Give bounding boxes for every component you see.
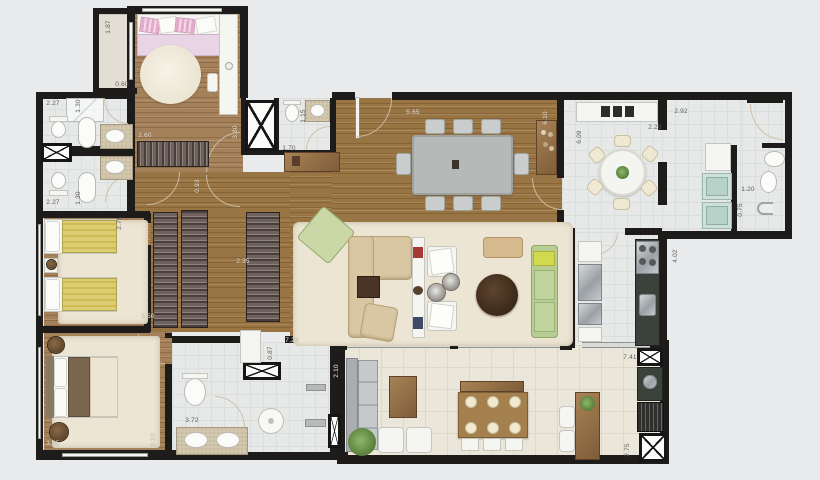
dimension-label: 2.92 [674, 109, 687, 116]
dimension-label: 3.50 [141, 314, 154, 321]
dimension-label: 7.26 [285, 338, 298, 345]
dimension-label: 6.10 [543, 111, 550, 124]
dimension-label: 2.75 [625, 443, 632, 456]
dimension-label: 2.27 [46, 101, 59, 108]
dimension-label: 1.70 [282, 146, 295, 153]
dimension-label: 4.02 [673, 249, 680, 262]
dimension-label: 2.60 [138, 133, 151, 140]
dimension-label: 1.30 [76, 99, 83, 112]
dimension-label: 0.75 [738, 203, 745, 216]
dimension-label: 2.71 [117, 216, 124, 229]
dimension-label: 0.60 [115, 82, 128, 89]
dimension-label: 3.35 [46, 441, 59, 448]
dimension-label: 3.72 [185, 418, 198, 425]
dimension-label: 2.20 [648, 125, 661, 132]
dimension-label: 0.93 [195, 179, 202, 192]
dimension-label: 1.20 [741, 187, 754, 194]
dimension-label: 6.09 [577, 130, 584, 143]
dimension-label: 2.10 [334, 364, 341, 377]
floor-plan: 1.870.602.271.302.603.800.932.271.302.71… [0, 0, 820, 480]
dimension-label: 3.80 [233, 125, 240, 138]
dimension-labels-layer: 1.870.602.271.302.603.800.932.271.302.71… [0, 0, 820, 480]
dimension-label: 2.27 [46, 200, 59, 207]
dimension-label: 1.30 [76, 191, 83, 204]
dimension-label: 1.15 [301, 109, 308, 122]
dimension-label: 1.87 [106, 20, 113, 33]
dimension-label: 5.65 [406, 110, 419, 117]
dimension-label: 0.87 [268, 346, 275, 359]
dimension-label: 3.10 [151, 433, 158, 446]
dimension-label: 7.41 [623, 355, 636, 362]
dimension-label: 2.35 [236, 259, 249, 266]
